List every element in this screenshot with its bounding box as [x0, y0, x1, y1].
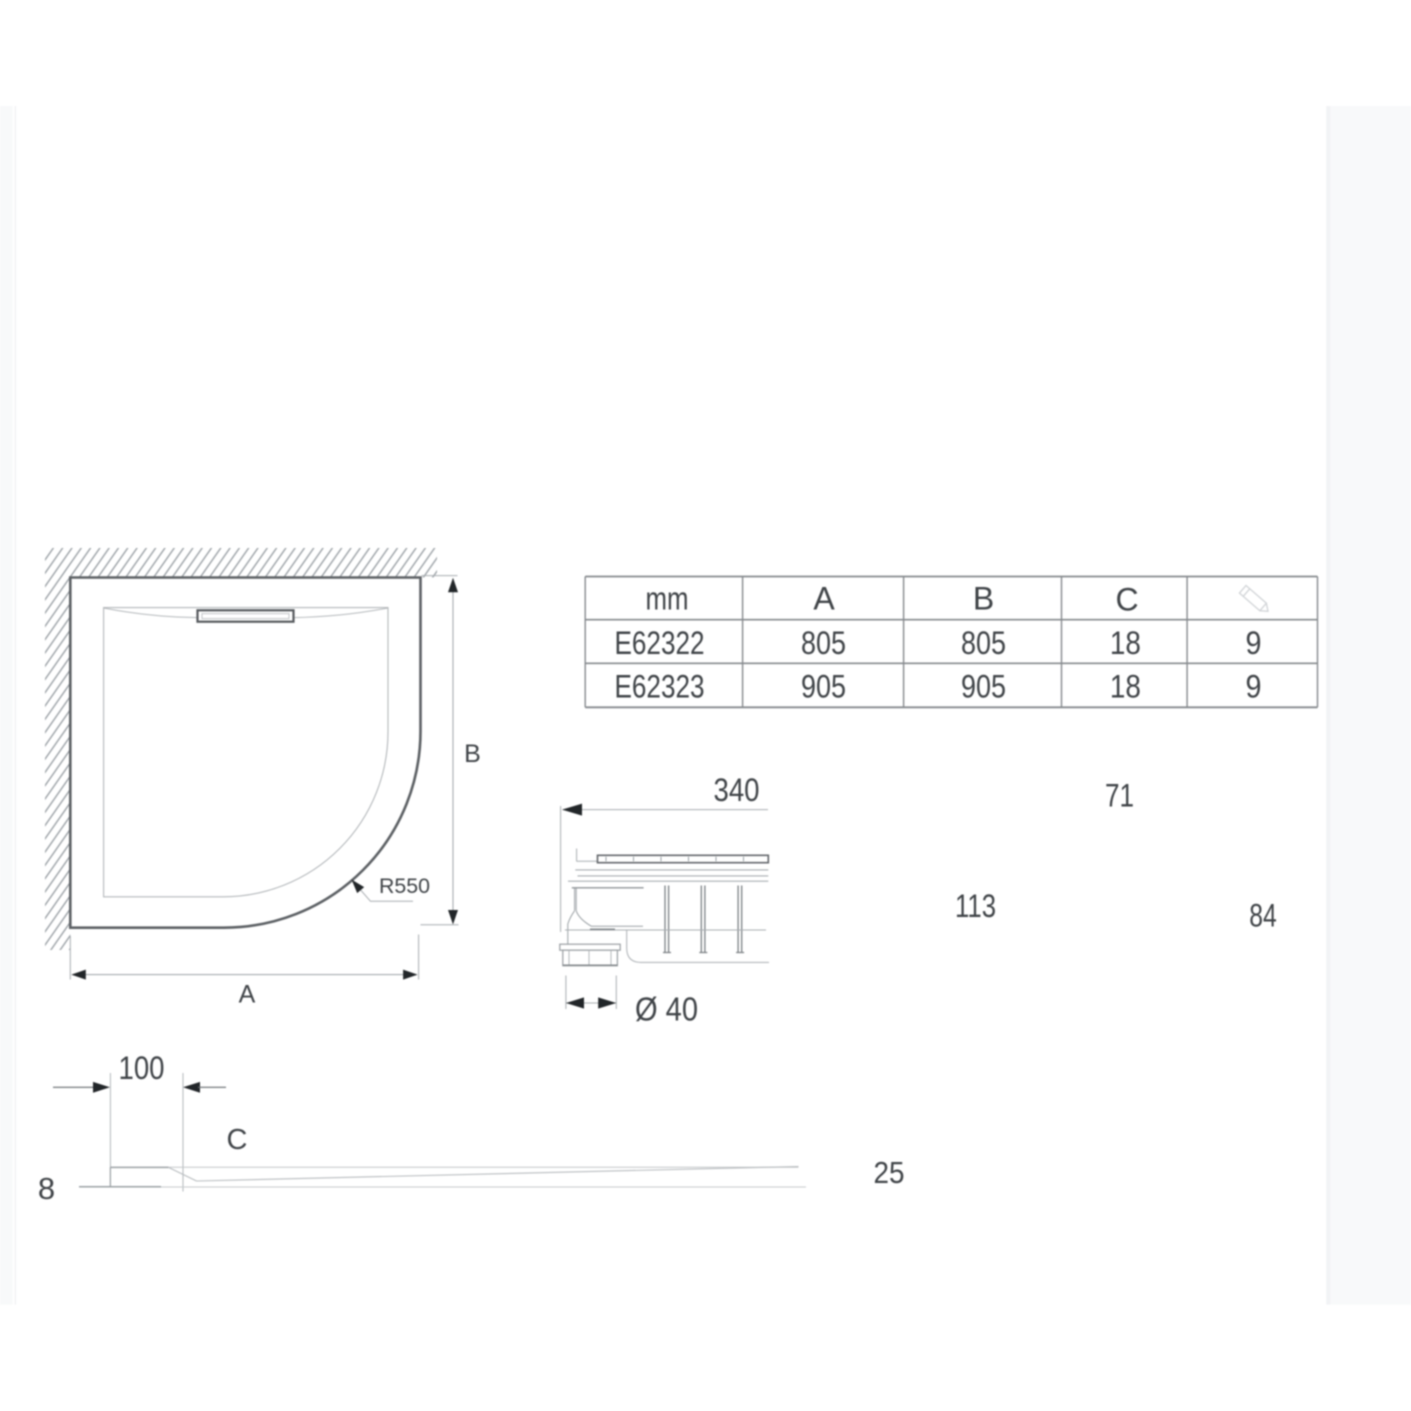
svg-text:C: C [227, 1124, 248, 1156]
svg-text:mm: mm [646, 581, 689, 617]
svg-text:B: B [464, 740, 481, 768]
svg-text:9: 9 [1246, 625, 1262, 661]
svg-text:9: 9 [1246, 668, 1262, 704]
svg-text:R550: R550 [379, 875, 430, 898]
svg-text:B: B [973, 581, 994, 617]
svg-text:905: 905 [801, 668, 846, 704]
svg-text:E62322: E62322 [615, 625, 705, 661]
svg-text:805: 805 [801, 625, 846, 661]
svg-text:Ø 40: Ø 40 [635, 991, 698, 1028]
svg-text:A: A [239, 981, 256, 1009]
svg-text:A: A [813, 581, 835, 617]
svg-text:18: 18 [1110, 625, 1141, 661]
svg-text:113: 113 [955, 888, 996, 924]
svg-text:C: C [1115, 582, 1138, 618]
svg-text:100: 100 [119, 1050, 165, 1086]
svg-text:340: 340 [714, 772, 760, 808]
svg-text:8: 8 [38, 1171, 55, 1206]
svg-text:805: 805 [961, 625, 1006, 661]
svg-text:E62323: E62323 [615, 668, 705, 704]
svg-text:18: 18 [1110, 668, 1141, 704]
svg-text:905: 905 [961, 668, 1006, 704]
svg-text:25: 25 [874, 1155, 905, 1190]
svg-text:71: 71 [1105, 777, 1134, 813]
svg-text:84: 84 [1249, 898, 1277, 934]
